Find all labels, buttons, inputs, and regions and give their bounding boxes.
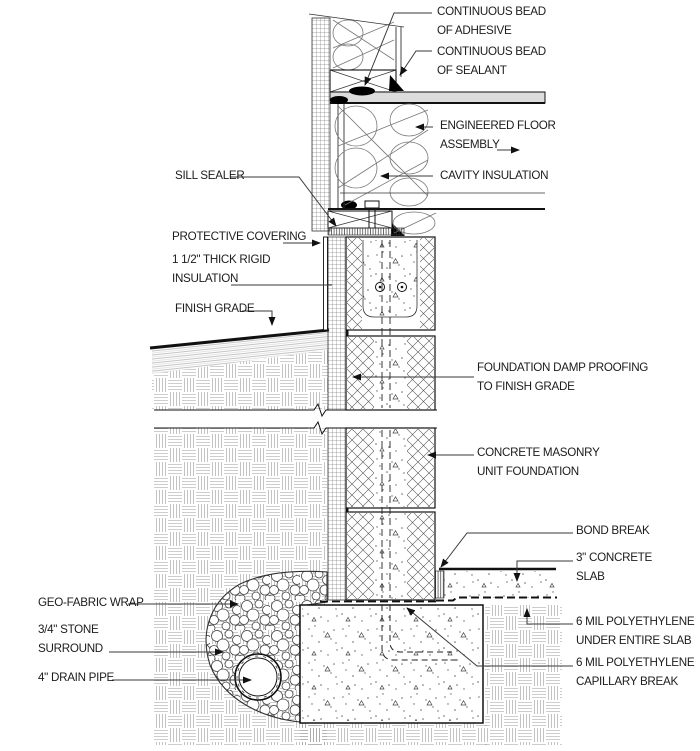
label-bond-break: BOND BREAK [576, 521, 649, 540]
label-stone-surround: 3/4" STONE SURROUND [38, 620, 103, 658]
sill-sealer-strip [328, 228, 404, 235]
label-poly-under-slab: 6 MIL POLYETHYLENE UNDER ENTIRE SLAB [576, 612, 694, 650]
label-finish-grade: FINISH GRADE [175, 299, 254, 318]
adhesive-bead [349, 87, 375, 96]
anchor-bolt-nut [365, 201, 379, 208]
drain-pipe [235, 654, 281, 700]
protective-covering-layer [324, 237, 328, 330]
label-concrete-slab: 3" CONCRETE SLAB [576, 548, 652, 586]
label-sill-sealer: SILL SEALER [175, 166, 244, 185]
label-foundation-damp-proofing: FOUNDATION DAMP PROOFING TO FINISH GRADE [477, 358, 648, 396]
wall-sheathing [312, 18, 330, 231]
label-continuous-bead-adhesive: CONTINUOUS BEAD OF ADHESIVE [437, 2, 546, 40]
concrete-footing [300, 605, 483, 723]
label-protective-covering: PROTECTIVE COVERING [172, 227, 306, 246]
label-drain-pipe: 4" DRAIN PIPE [38, 668, 114, 687]
interior-finish-lines [396, 27, 401, 77]
label-cavity-insulation: CAVITY INSULATION [440, 166, 548, 185]
bond-break-strip [435, 571, 444, 598]
concrete-slab [435, 569, 556, 598]
label-rigid-insulation: 1 1/2" THICK RIGID INSULATION [172, 250, 270, 288]
label-poly-capillary-break: 6 MIL POLYETHYLENE CAPILLARY BREAK [576, 653, 694, 691]
label-continuous-bead-sealant: CONTINUOUS BEAD OF SEALANT [437, 42, 546, 80]
detail-drawing-page: CONTINUOUS BEAD OF ADHESIVE CONTINUOUS B… [0, 0, 700, 751]
label-geo-fabric-wrap: GEO-FABRIC WRAP [38, 593, 144, 612]
cmu-foundation-wall [346, 237, 435, 600]
wall-cavity-insulation [333, 20, 394, 70]
label-engineered-floor-assembly: ENGINEERED FLOOR ASSEMBLY [440, 116, 556, 154]
label-cmu-foundation: CONCRETE MASONRY UNIT FOUNDATION [477, 443, 600, 481]
